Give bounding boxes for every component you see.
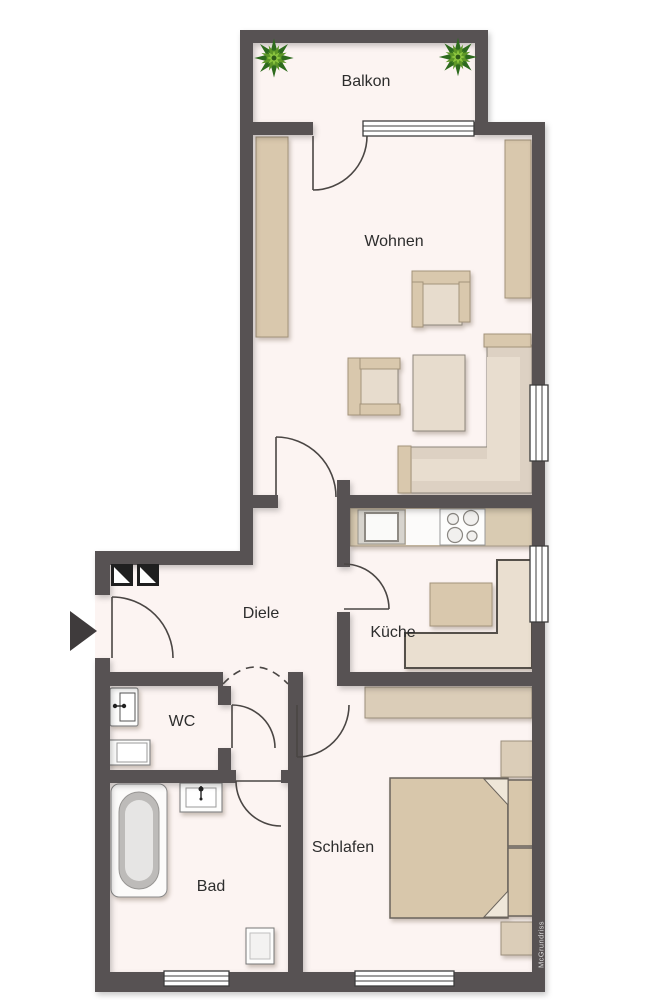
coffee-table-icon [413,355,465,431]
bed-icon [390,778,533,918]
bad-corridor-floor [231,686,288,770]
radiator-icon [246,928,274,964]
wall-segment [337,480,350,567]
nightstand-icon [501,922,534,955]
stove-icon [440,509,485,545]
entrance-arrow-icon [70,611,97,651]
bathtub-icon [111,784,167,897]
balkon-door-gap [313,122,363,135]
kitchen-table-icon [430,583,492,626]
wall-segment [95,551,110,595]
wall-segment [253,495,278,508]
passage-floor [223,672,288,686]
wardrobe-icon [365,687,532,718]
wall-segment [288,686,303,972]
room-label-bad: Bad [197,878,225,895]
armchair-icon [412,271,470,327]
shaft-icon [111,564,133,586]
wall-segment [288,672,303,686]
wall-segment [350,495,532,508]
toilet-icon [110,688,138,726]
room-label-schlafen: Schlafen [312,839,374,856]
kitchen-sink-icon [358,510,405,544]
wall-segment [218,686,231,705]
wall-segment [95,672,223,686]
wc-sink-icon [108,740,150,765]
bad-window [164,971,229,986]
wall-segment [218,748,231,770]
room-label-kueche: Küche [370,624,415,641]
wall-segment [240,30,488,43]
wall-segment [95,551,240,565]
wall-segment [240,30,253,565]
floorplan-page: Balkon Wohnen Diele Küche WC Bad Schlafe… [0,0,650,1000]
plant-icon [254,38,293,77]
wall-segment [337,612,350,686]
room-label-diele: Diele [243,605,280,622]
kitchen-counter-white [406,509,440,545]
wall-segment [95,972,545,992]
wc-door-gap [218,705,231,748]
wall-segment [349,672,532,686]
wohnen-window [530,385,548,461]
wall-segment [95,658,110,992]
washbasin-icon [180,783,222,812]
nightstand-icon [501,741,534,777]
wohnen-cabinet-left [256,137,288,337]
room-label-wohnen: Wohnen [364,233,423,250]
floorplan-canvas: Balkon Wohnen Diele Küche WC Bad Schlafe… [0,0,650,1000]
shaft-icon [137,564,159,586]
room-label-balkon: Balkon [342,73,391,90]
watermark-text: McGrundriss [537,921,546,968]
plant-icon [439,38,477,76]
balkon-window [363,121,474,136]
wall-segment [253,122,313,135]
kueche-window [530,546,548,622]
schlafen-window [355,971,454,986]
armchair-icon [348,358,400,415]
kueche-door-gap [337,567,350,612]
room-label-wc: WC [169,713,196,730]
wall-segment [95,770,236,783]
wall-segment [475,30,488,122]
entrance-gap [95,595,110,658]
wohnen-cabinet-right [505,140,531,298]
